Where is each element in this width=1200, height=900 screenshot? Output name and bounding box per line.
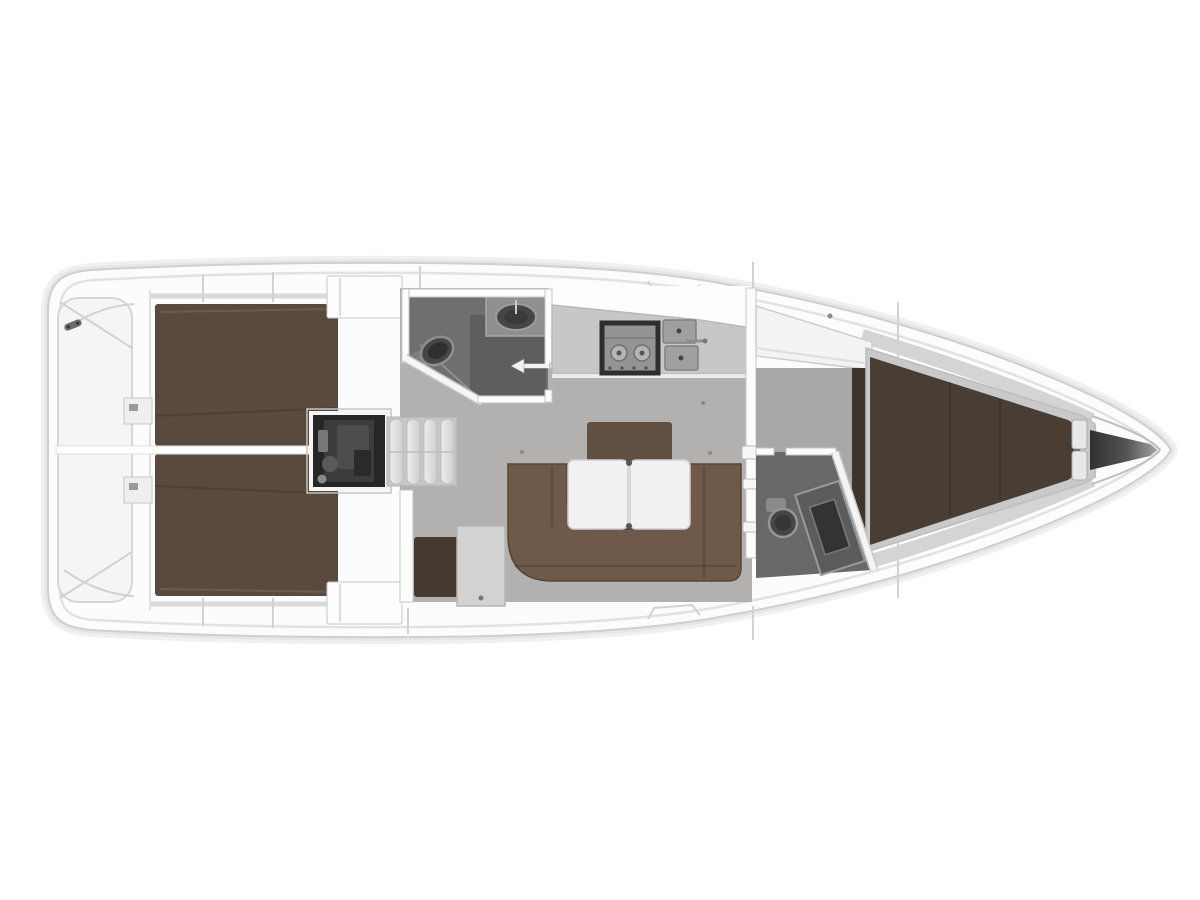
companionway-steps — [387, 417, 457, 486]
aft-wardrobe-port — [327, 276, 402, 318]
engine-pulley — [322, 456, 338, 472]
table-leaf-left — [568, 460, 628, 529]
engine-compartment — [307, 409, 391, 493]
nav-seat — [414, 537, 458, 597]
aft-locker-port — [124, 398, 152, 424]
chart-table — [457, 526, 505, 606]
salon-table — [568, 460, 690, 529]
windlass-bar-top — [1072, 420, 1087, 449]
galley-stove — [602, 323, 658, 373]
aft-wardrobe-starboard — [327, 582, 402, 624]
windlass-bar-bottom — [1072, 451, 1087, 480]
deck-dot-3 — [828, 314, 833, 319]
bulkhead-hinge-2 — [743, 522, 758, 532]
engine-filter — [318, 475, 327, 484]
aft-head-sink-counter — [486, 297, 546, 336]
table-latch-bottom — [626, 523, 632, 529]
aft-locker-starboard — [124, 477, 152, 503]
engine-mount — [354, 450, 371, 476]
bulkhead-wall — [746, 288, 756, 558]
table-leaf-right — [630, 460, 690, 529]
nav-wall — [400, 490, 413, 602]
bulkhead-hinge-1 — [743, 479, 758, 489]
salon-fwd-bench — [587, 422, 672, 462]
engine-manifold — [318, 430, 328, 452]
yacht-layout-canvas: Sailing yacht interior layout plan, top … — [0, 0, 1200, 900]
yacht-floorplan: Sailing yacht interior layout plan, top … — [0, 0, 1200, 900]
chart-table-handle — [479, 596, 484, 601]
table-latch-top — [626, 460, 632, 466]
